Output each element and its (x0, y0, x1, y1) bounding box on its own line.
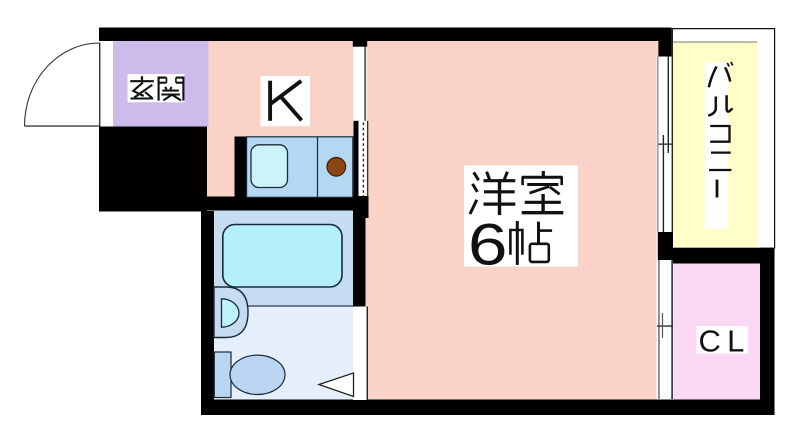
svg-text:CL: CL (699, 323, 751, 358)
svg-text:6: 6 (468, 212, 508, 277)
